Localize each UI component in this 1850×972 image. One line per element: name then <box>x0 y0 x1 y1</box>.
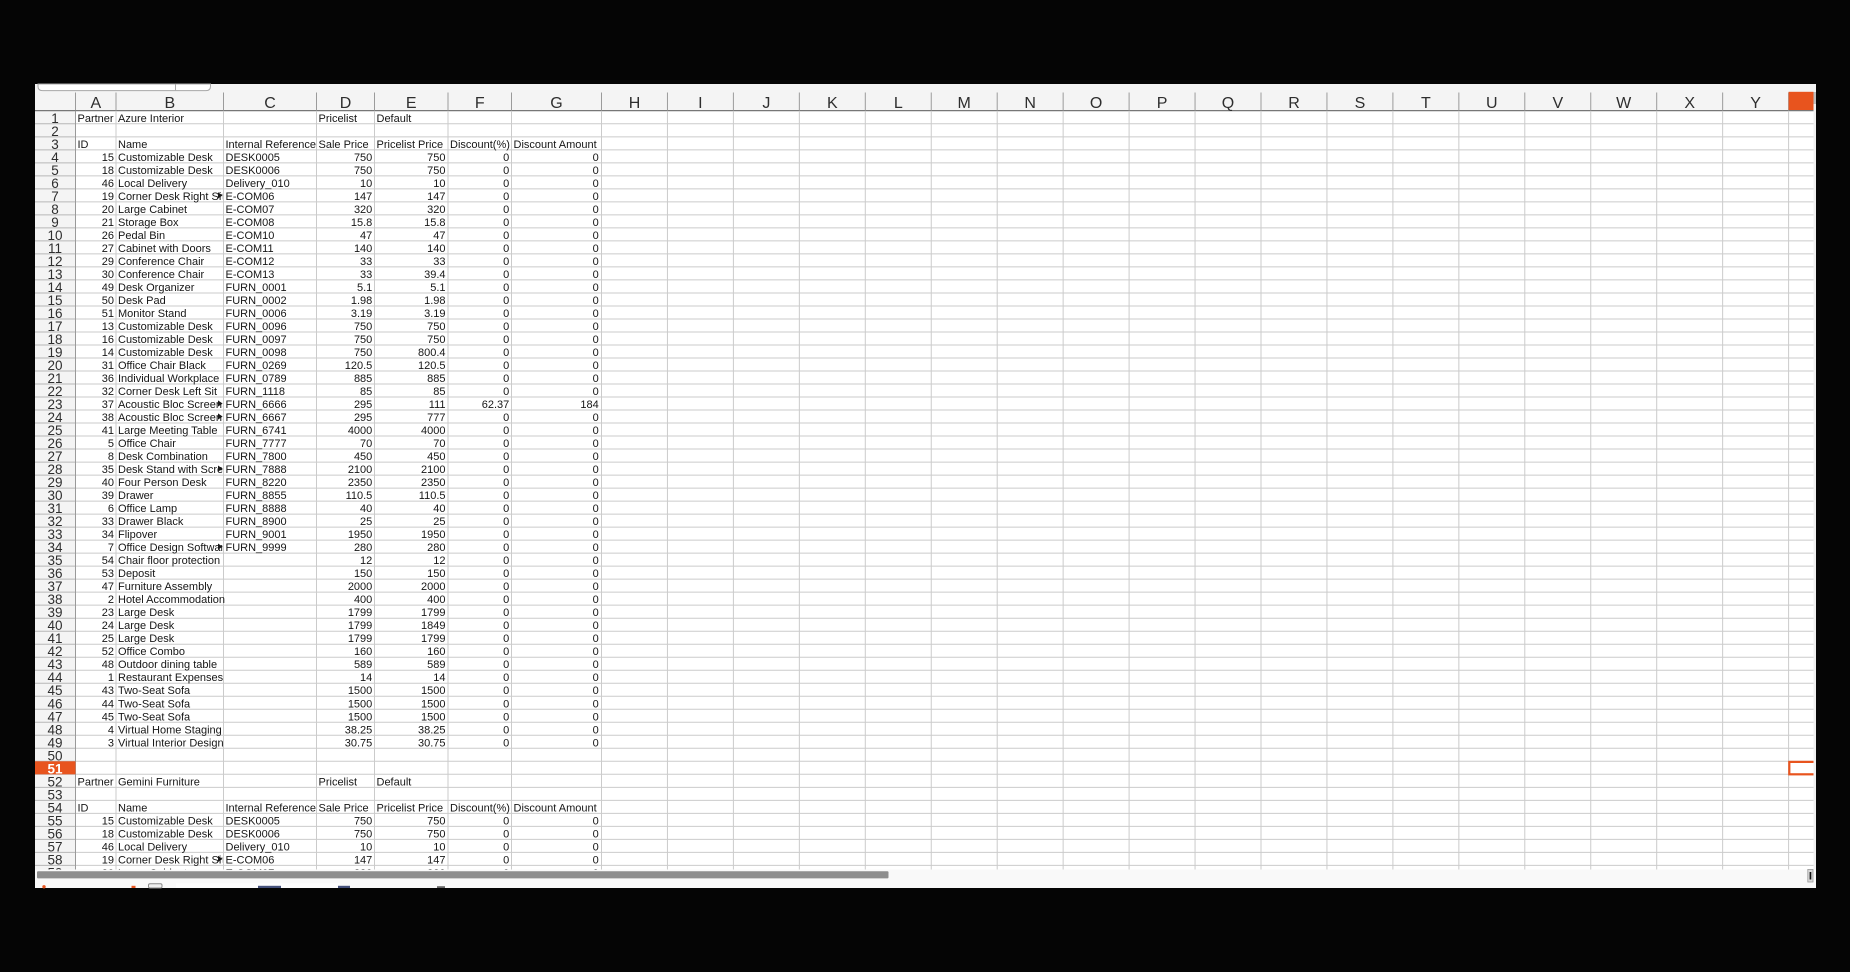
svg-text:40: 40 <box>360 503 372 515</box>
svg-text:54: 54 <box>102 555 114 567</box>
svg-text:14: 14 <box>433 672 445 684</box>
svg-text:U: U <box>1486 95 1498 112</box>
svg-text:FURN_0096: FURN_0096 <box>226 321 287 333</box>
svg-text:0: 0 <box>593 204 599 216</box>
svg-text:D: D <box>340 95 352 112</box>
svg-text:5: 5 <box>108 438 114 450</box>
svg-text:0: 0 <box>593 464 599 476</box>
svg-text:40: 40 <box>102 477 114 489</box>
svg-text:G: G <box>550 95 562 112</box>
svg-text:Flipover: Flipover <box>118 529 157 541</box>
svg-text:111: 111 <box>429 399 446 411</box>
svg-text:30.75: 30.75 <box>345 737 373 749</box>
svg-text:Delivery_010: Delivery_010 <box>226 178 290 190</box>
svg-text:15.8: 15.8 <box>351 217 372 229</box>
svg-text:0: 0 <box>593 360 599 372</box>
svg-text:1.98: 1.98 <box>351 295 372 307</box>
svg-text:0: 0 <box>503 672 509 684</box>
svg-text:147: 147 <box>354 191 372 203</box>
svg-text:Name: Name <box>118 139 147 151</box>
svg-text:0: 0 <box>503 295 509 307</box>
svg-text:Discount(%): Discount(%) <box>450 139 510 151</box>
svg-text:0: 0 <box>593 854 599 866</box>
svg-text:47: 47 <box>433 230 445 242</box>
svg-text:Virtual Home Staging: Virtual Home Staging <box>118 724 222 736</box>
svg-text:24: 24 <box>102 620 114 632</box>
svg-text:0: 0 <box>503 152 509 164</box>
svg-text:1500: 1500 <box>421 698 445 710</box>
svg-text:Internal Reference: Internal Reference <box>226 139 317 151</box>
svg-text:27: 27 <box>102 243 114 255</box>
svg-text:FURN_0789: FURN_0789 <box>226 373 287 385</box>
svg-text:0: 0 <box>593 425 599 437</box>
svg-text:Internal Reference: Internal Reference <box>226 802 317 814</box>
svg-text:0: 0 <box>503 503 509 515</box>
svg-text:0: 0 <box>503 451 509 463</box>
svg-text:Office Chair Black: Office Chair Black <box>118 360 206 372</box>
svg-text:750: 750 <box>354 321 372 333</box>
svg-text:85: 85 <box>360 386 372 398</box>
svg-text:0: 0 <box>593 841 599 853</box>
svg-text:1: 1 <box>108 672 114 684</box>
svg-text:Sale Price: Sale Price <box>319 139 369 151</box>
svg-text:0: 0 <box>593 555 599 567</box>
svg-text:DESK0005: DESK0005 <box>226 815 280 827</box>
svg-text:750: 750 <box>427 815 445 827</box>
svg-text:0: 0 <box>593 542 599 554</box>
svg-text:Drawer: Drawer <box>118 490 154 502</box>
svg-text:750: 750 <box>354 815 372 827</box>
svg-text:0: 0 <box>593 477 599 489</box>
svg-text:Customizable Desk: Customizable Desk <box>118 828 213 840</box>
svg-text:33: 33 <box>360 256 372 268</box>
svg-text:1950: 1950 <box>421 529 445 541</box>
svg-text:280: 280 <box>427 542 445 554</box>
svg-text:1950: 1950 <box>348 529 372 541</box>
svg-text:0: 0 <box>503 165 509 177</box>
svg-text:E-COM06: E-COM06 <box>226 854 275 866</box>
svg-text:6: 6 <box>108 503 114 515</box>
svg-text:X: X <box>1684 95 1695 112</box>
svg-text:0: 0 <box>593 672 599 684</box>
svg-text:160: 160 <box>427 646 445 658</box>
svg-text:Customizable Desk: Customizable Desk <box>118 165 213 177</box>
svg-text:0: 0 <box>593 633 599 645</box>
svg-text:0: 0 <box>503 347 509 359</box>
svg-text:0: 0 <box>593 607 599 619</box>
svg-text:B: B <box>164 95 175 112</box>
svg-text:FURN_6741: FURN_6741 <box>226 425 287 437</box>
svg-text:Office Chair: Office Chair <box>118 438 176 450</box>
svg-text:FURN_8900: FURN_8900 <box>226 516 287 528</box>
svg-text:FURN_0269: FURN_0269 <box>226 360 287 372</box>
svg-text:Large Desk: Large Desk <box>118 633 175 645</box>
svg-text:E-COM06: E-COM06 <box>226 191 275 203</box>
svg-text:589: 589 <box>427 659 445 671</box>
svg-text:DESK0006: DESK0006 <box>226 828 280 840</box>
svg-text:Delivery_010: Delivery_010 <box>226 841 290 853</box>
svg-text:0: 0 <box>503 646 509 658</box>
svg-text:Pricelist Price: Pricelist Price <box>377 802 444 814</box>
svg-text:120.5: 120.5 <box>418 360 446 372</box>
svg-text:FURN_0001: FURN_0001 <box>226 282 287 294</box>
svg-text:Office Combo: Office Combo <box>118 646 185 658</box>
svg-text:1.98: 1.98 <box>424 295 445 307</box>
svg-text:30: 30 <box>102 269 114 281</box>
svg-text:Four Person Desk: Four Person Desk <box>118 477 207 489</box>
svg-text:Acoustic Bloc Screens: Acoustic Bloc Screens <box>118 399 228 411</box>
svg-text:750: 750 <box>427 152 445 164</box>
svg-text:0: 0 <box>503 425 509 437</box>
svg-text:46: 46 <box>102 178 114 190</box>
svg-text:4000: 4000 <box>421 425 445 437</box>
svg-text:18: 18 <box>102 828 114 840</box>
svg-text:0: 0 <box>593 178 599 190</box>
svg-text:Corner Desk Left Sit: Corner Desk Left Sit <box>118 386 217 398</box>
svg-text:0: 0 <box>503 633 509 645</box>
svg-text:Pricelist Price: Pricelist Price <box>377 139 444 151</box>
svg-text:0: 0 <box>593 451 599 463</box>
svg-text:150: 150 <box>354 568 372 580</box>
svg-text:E-COM07: E-COM07 <box>226 204 275 216</box>
svg-text:Customizable Desk: Customizable Desk <box>118 334 213 346</box>
svg-text:Conference Chair: Conference Chair <box>118 269 205 281</box>
svg-text:P: P <box>1157 95 1168 112</box>
svg-text:0: 0 <box>503 854 509 866</box>
svg-text:0: 0 <box>593 724 599 736</box>
svg-text:48: 48 <box>102 659 114 671</box>
svg-text:0: 0 <box>593 152 599 164</box>
svg-text:750: 750 <box>354 334 372 346</box>
svg-text:750: 750 <box>427 165 445 177</box>
svg-text:15: 15 <box>102 152 114 164</box>
svg-text:0: 0 <box>593 698 599 710</box>
svg-text:885: 885 <box>354 373 372 385</box>
svg-text:0: 0 <box>593 828 599 840</box>
svg-text:0: 0 <box>593 529 599 541</box>
svg-text:0: 0 <box>593 230 599 242</box>
svg-text:Desk Pad: Desk Pad <box>118 295 166 307</box>
svg-text:750: 750 <box>427 828 445 840</box>
svg-text:Customizable Desk: Customizable Desk <box>118 321 213 333</box>
svg-text:Partner: Partner <box>78 776 114 788</box>
svg-text:320: 320 <box>427 204 445 216</box>
svg-text:0: 0 <box>593 438 599 450</box>
svg-text:0: 0 <box>593 646 599 658</box>
svg-text:Customizable Desk: Customizable Desk <box>118 347 213 359</box>
svg-text:E-COM10: E-COM10 <box>226 230 275 242</box>
svg-text:0: 0 <box>503 594 509 606</box>
svg-text:0: 0 <box>503 373 509 385</box>
svg-text:Desk Organizer: Desk Organizer <box>118 282 195 294</box>
svg-text:750: 750 <box>427 334 445 346</box>
svg-text:0: 0 <box>593 490 599 502</box>
svg-text:0: 0 <box>593 386 599 398</box>
svg-text:Default: Default <box>377 776 412 788</box>
svg-text:W: W <box>1616 95 1632 112</box>
svg-text:Y: Y <box>1750 95 1761 112</box>
svg-text:34: 34 <box>102 529 114 541</box>
svg-text:1500: 1500 <box>348 711 372 723</box>
svg-text:39.4: 39.4 <box>424 269 445 281</box>
svg-text:0: 0 <box>503 828 509 840</box>
svg-text:Outdoor dining table: Outdoor dining table <box>118 659 217 671</box>
svg-text:0: 0 <box>503 256 509 268</box>
svg-text:0: 0 <box>593 308 599 320</box>
svg-text:4000: 4000 <box>348 425 372 437</box>
svg-text:4: 4 <box>108 724 114 736</box>
svg-text:750: 750 <box>354 152 372 164</box>
svg-text:16: 16 <box>102 334 114 346</box>
svg-text:0: 0 <box>503 178 509 190</box>
svg-text:Two-Seat Sofa: Two-Seat Sofa <box>118 685 191 697</box>
svg-text:Large Desk: Large Desk <box>118 620 175 632</box>
svg-text:Local Delivery: Local Delivery <box>118 841 188 853</box>
svg-text:Partner: Partner <box>78 113 114 125</box>
svg-text:44: 44 <box>102 698 114 710</box>
svg-text:25: 25 <box>433 516 445 528</box>
svg-text:0: 0 <box>503 607 509 619</box>
svg-text:Chair floor protection: Chair floor protection <box>118 555 220 567</box>
svg-text:0: 0 <box>503 204 509 216</box>
svg-text:0: 0 <box>593 295 599 307</box>
svg-text:10: 10 <box>360 841 372 853</box>
svg-text:Name: Name <box>118 802 147 814</box>
svg-text:85: 85 <box>433 386 445 398</box>
svg-text:1799: 1799 <box>348 633 372 645</box>
svg-text:0: 0 <box>503 815 509 827</box>
svg-text:320: 320 <box>354 204 372 216</box>
svg-text:Default: Default <box>377 113 412 125</box>
svg-text:FURN_0098: FURN_0098 <box>226 347 287 359</box>
svg-text:47: 47 <box>102 581 114 593</box>
svg-text:J: J <box>762 95 770 112</box>
svg-text:110.5: 110.5 <box>346 490 373 502</box>
svg-text:Acoustic Bloc Screens: Acoustic Bloc Screens <box>118 412 228 424</box>
svg-text:50: 50 <box>102 295 114 307</box>
svg-text:Large Desk: Large Desk <box>118 607 175 619</box>
svg-text:FURN_7777: FURN_7777 <box>226 438 287 450</box>
svg-text:Office Lamp: Office Lamp <box>118 503 177 515</box>
svg-text:Monitor Stand: Monitor Stand <box>118 308 186 320</box>
svg-text:E: E <box>406 95 417 112</box>
svg-text:0: 0 <box>593 373 599 385</box>
svg-text:140: 140 <box>427 243 445 255</box>
svg-text:0: 0 <box>503 529 509 541</box>
svg-text:0: 0 <box>593 581 599 593</box>
svg-text:2000: 2000 <box>421 581 445 593</box>
svg-text:0: 0 <box>503 490 509 502</box>
svg-text:N: N <box>1024 95 1036 112</box>
svg-text:Discount Amount: Discount Amount <box>514 802 597 814</box>
svg-text:14: 14 <box>360 672 372 684</box>
svg-text:8: 8 <box>108 451 114 463</box>
svg-text:33: 33 <box>360 269 372 281</box>
svg-text:K: K <box>827 95 838 112</box>
svg-text:750: 750 <box>354 828 372 840</box>
svg-text:0: 0 <box>593 412 599 424</box>
svg-text:0: 0 <box>593 334 599 346</box>
svg-text:FURN_6666: FURN_6666 <box>226 399 287 411</box>
svg-text:2: 2 <box>108 594 114 606</box>
svg-text:25: 25 <box>360 516 372 528</box>
svg-text:FURN_0006: FURN_0006 <box>226 308 287 320</box>
svg-text:2000: 2000 <box>348 581 372 593</box>
svg-text:31: 31 <box>102 360 114 372</box>
svg-text:3.19: 3.19 <box>424 308 445 320</box>
svg-text:Azure Interior: Azure Interior <box>118 113 184 125</box>
svg-text:Pedal Bin: Pedal Bin <box>118 230 165 242</box>
svg-text:Drawer Black: Drawer Black <box>118 516 184 528</box>
svg-text:0: 0 <box>503 620 509 632</box>
svg-text:5.1: 5.1 <box>357 282 372 294</box>
svg-text:7: 7 <box>108 542 114 554</box>
svg-text:F: F <box>475 95 485 112</box>
svg-text:0: 0 <box>593 737 599 749</box>
svg-text:20: 20 <box>102 204 114 216</box>
svg-text:Gemini Furniture: Gemini Furniture <box>118 776 200 788</box>
svg-text:777: 777 <box>427 412 445 424</box>
svg-text:0: 0 <box>593 347 599 359</box>
svg-text:147: 147 <box>427 191 445 203</box>
svg-text:0: 0 <box>503 581 509 593</box>
svg-text:0: 0 <box>503 542 509 554</box>
svg-text:589: 589 <box>354 659 372 671</box>
svg-text:450: 450 <box>354 451 372 463</box>
svg-text:5.1: 5.1 <box>430 282 445 294</box>
svg-text:36: 36 <box>102 373 114 385</box>
svg-text:14: 14 <box>102 347 114 359</box>
svg-text:V: V <box>1552 95 1563 112</box>
svg-text:0: 0 <box>593 243 599 255</box>
svg-text:147: 147 <box>427 854 445 866</box>
svg-text:33: 33 <box>102 516 114 528</box>
svg-text:E-COM08: E-COM08 <box>226 217 275 229</box>
svg-text:46: 46 <box>102 841 114 853</box>
svg-text:3: 3 <box>108 737 114 749</box>
svg-text:2100: 2100 <box>421 464 445 476</box>
svg-text:Local Delivery: Local Delivery <box>118 178 188 190</box>
svg-text:23: 23 <box>102 607 114 619</box>
svg-text:0: 0 <box>503 412 509 424</box>
svg-text:Pricelist: Pricelist <box>319 113 358 125</box>
svg-text:Hotel Accommodation: Hotel Accommodation <box>118 594 225 606</box>
svg-text:I: I <box>698 95 702 112</box>
svg-text:400: 400 <box>354 594 372 606</box>
svg-text:33: 33 <box>433 256 445 268</box>
svg-text:1799: 1799 <box>348 607 372 619</box>
svg-text:L: L <box>894 95 903 112</box>
svg-text:52: 52 <box>102 646 114 658</box>
svg-text:Customizable Desk: Customizable Desk <box>118 152 213 164</box>
svg-text:35: 35 <box>102 464 114 476</box>
svg-text:0: 0 <box>593 568 599 580</box>
svg-text:FURN_9999: FURN_9999 <box>226 542 287 554</box>
svg-text:750: 750 <box>427 321 445 333</box>
svg-text:1500: 1500 <box>348 685 372 697</box>
svg-text:150: 150 <box>427 568 445 580</box>
svg-text:FURN_0097: FURN_0097 <box>226 334 287 346</box>
svg-text:51: 51 <box>102 308 114 320</box>
svg-text:0: 0 <box>593 503 599 515</box>
svg-text:0: 0 <box>593 711 599 723</box>
svg-text:0: 0 <box>503 737 509 749</box>
svg-text:ID: ID <box>78 802 89 814</box>
svg-text:0: 0 <box>503 360 509 372</box>
svg-text:0: 0 <box>503 568 509 580</box>
svg-text:O: O <box>1090 95 1102 112</box>
svg-text:0: 0 <box>503 685 509 697</box>
svg-text:Corner Desk Right Sit: Corner Desk Right Sit <box>118 854 224 866</box>
svg-text:140: 140 <box>354 243 372 255</box>
svg-text:53: 53 <box>102 568 114 580</box>
svg-text:Restaurant Expenses: Restaurant Expenses <box>118 672 224 684</box>
svg-text:47: 47 <box>360 230 372 242</box>
svg-text:19: 19 <box>102 854 114 866</box>
svg-text:40: 40 <box>433 503 445 515</box>
svg-text:ID: ID <box>78 139 89 151</box>
svg-text:Furniture Assembly: Furniture Assembly <box>118 581 213 593</box>
svg-text:13: 13 <box>102 321 114 333</box>
svg-text:2350: 2350 <box>421 477 445 489</box>
svg-text:Discount(%): Discount(%) <box>450 802 510 814</box>
svg-text:DESK0005: DESK0005 <box>226 152 280 164</box>
svg-text:1799: 1799 <box>421 633 445 645</box>
svg-text:0: 0 <box>503 282 509 294</box>
svg-text:45: 45 <box>102 711 114 723</box>
svg-text:0: 0 <box>593 620 599 632</box>
svg-text:38: 38 <box>102 412 114 424</box>
svg-text:15.8: 15.8 <box>424 217 445 229</box>
svg-text:110.5: 110.5 <box>419 490 446 502</box>
svg-text:H: H <box>629 95 641 112</box>
svg-text:Virtual Interior Design: Virtual Interior Design <box>118 737 224 749</box>
svg-text:0: 0 <box>593 516 599 528</box>
svg-text:0: 0 <box>593 269 599 281</box>
svg-text:0: 0 <box>593 256 599 268</box>
svg-text:885: 885 <box>427 373 445 385</box>
svg-text:295: 295 <box>354 399 372 411</box>
svg-text:1500: 1500 <box>421 685 445 697</box>
svg-text:Pricelist: Pricelist <box>319 776 358 788</box>
svg-text:0: 0 <box>593 191 599 203</box>
svg-text:R: R <box>1288 95 1300 112</box>
svg-text:10: 10 <box>433 841 445 853</box>
svg-text:30.75: 30.75 <box>418 737 446 749</box>
svg-text:0: 0 <box>593 815 599 827</box>
svg-text:C: C <box>264 95 276 112</box>
svg-text:Two-Seat Sofa: Two-Seat Sofa <box>118 711 191 723</box>
svg-text:0: 0 <box>503 516 509 528</box>
svg-text:62.37: 62.37 <box>482 399 510 411</box>
svg-text:FURN_8855: FURN_8855 <box>226 490 287 502</box>
svg-text:10: 10 <box>360 178 372 190</box>
svg-text:0: 0 <box>593 594 599 606</box>
svg-text:295: 295 <box>354 412 372 424</box>
svg-text:M: M <box>958 95 971 112</box>
svg-text:Corner Desk Right Sit: Corner Desk Right Sit <box>118 191 224 203</box>
svg-text:750: 750 <box>354 347 372 359</box>
svg-text:Storage Box: Storage Box <box>118 217 179 229</box>
svg-text:0: 0 <box>593 217 599 229</box>
svg-text:37: 37 <box>102 399 114 411</box>
svg-text:0: 0 <box>503 386 509 398</box>
svg-text:29: 29 <box>102 256 114 268</box>
svg-text:Q: Q <box>1222 95 1234 112</box>
svg-text:0: 0 <box>503 841 509 853</box>
svg-text:26: 26 <box>102 230 114 242</box>
svg-text:FURN_9001: FURN_9001 <box>226 529 287 541</box>
